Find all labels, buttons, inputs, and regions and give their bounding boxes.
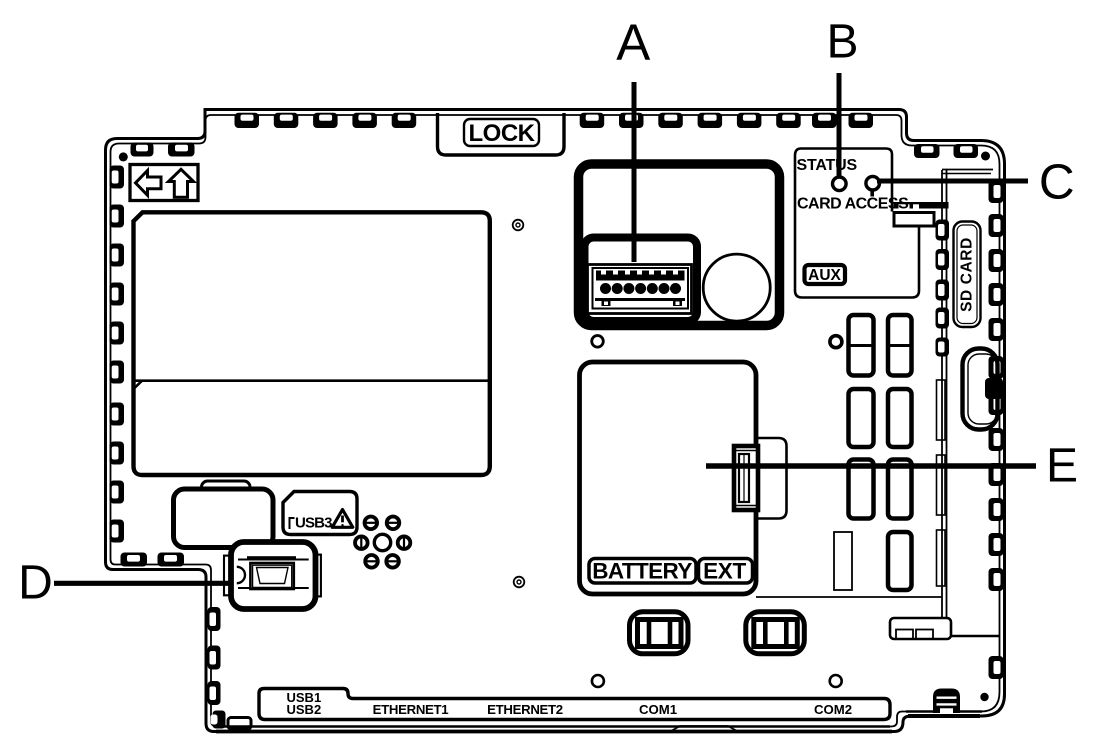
svg-text:E: E (1046, 440, 1078, 493)
svg-text:LOCK: LOCK (469, 120, 536, 147)
svg-text:COM1: COM1 (639, 702, 677, 717)
svg-text:USB3: USB3 (295, 515, 333, 532)
svg-text:ETHERNET2: ETHERNET2 (487, 702, 563, 717)
svg-text:D: D (18, 557, 53, 610)
svg-text:COM2: COM2 (814, 702, 852, 717)
svg-text:C: C (1039, 155, 1075, 210)
svg-text:BATTERY: BATTERY (592, 559, 692, 584)
svg-text:A: A (616, 14, 650, 71)
svg-text:CARD ACCESS: CARD ACCESS (797, 196, 909, 213)
svg-text:AUX: AUX (808, 267, 841, 284)
svg-text:ETHERNET1: ETHERNET1 (373, 702, 449, 717)
svg-text:STATUS: STATUS (797, 157, 858, 174)
svg-text:USB2: USB2 (287, 702, 322, 717)
svg-text:SD CARD: SD CARD (959, 237, 976, 312)
svg-text:B: B (826, 16, 858, 69)
svg-text:EXT: EXT (703, 559, 746, 584)
